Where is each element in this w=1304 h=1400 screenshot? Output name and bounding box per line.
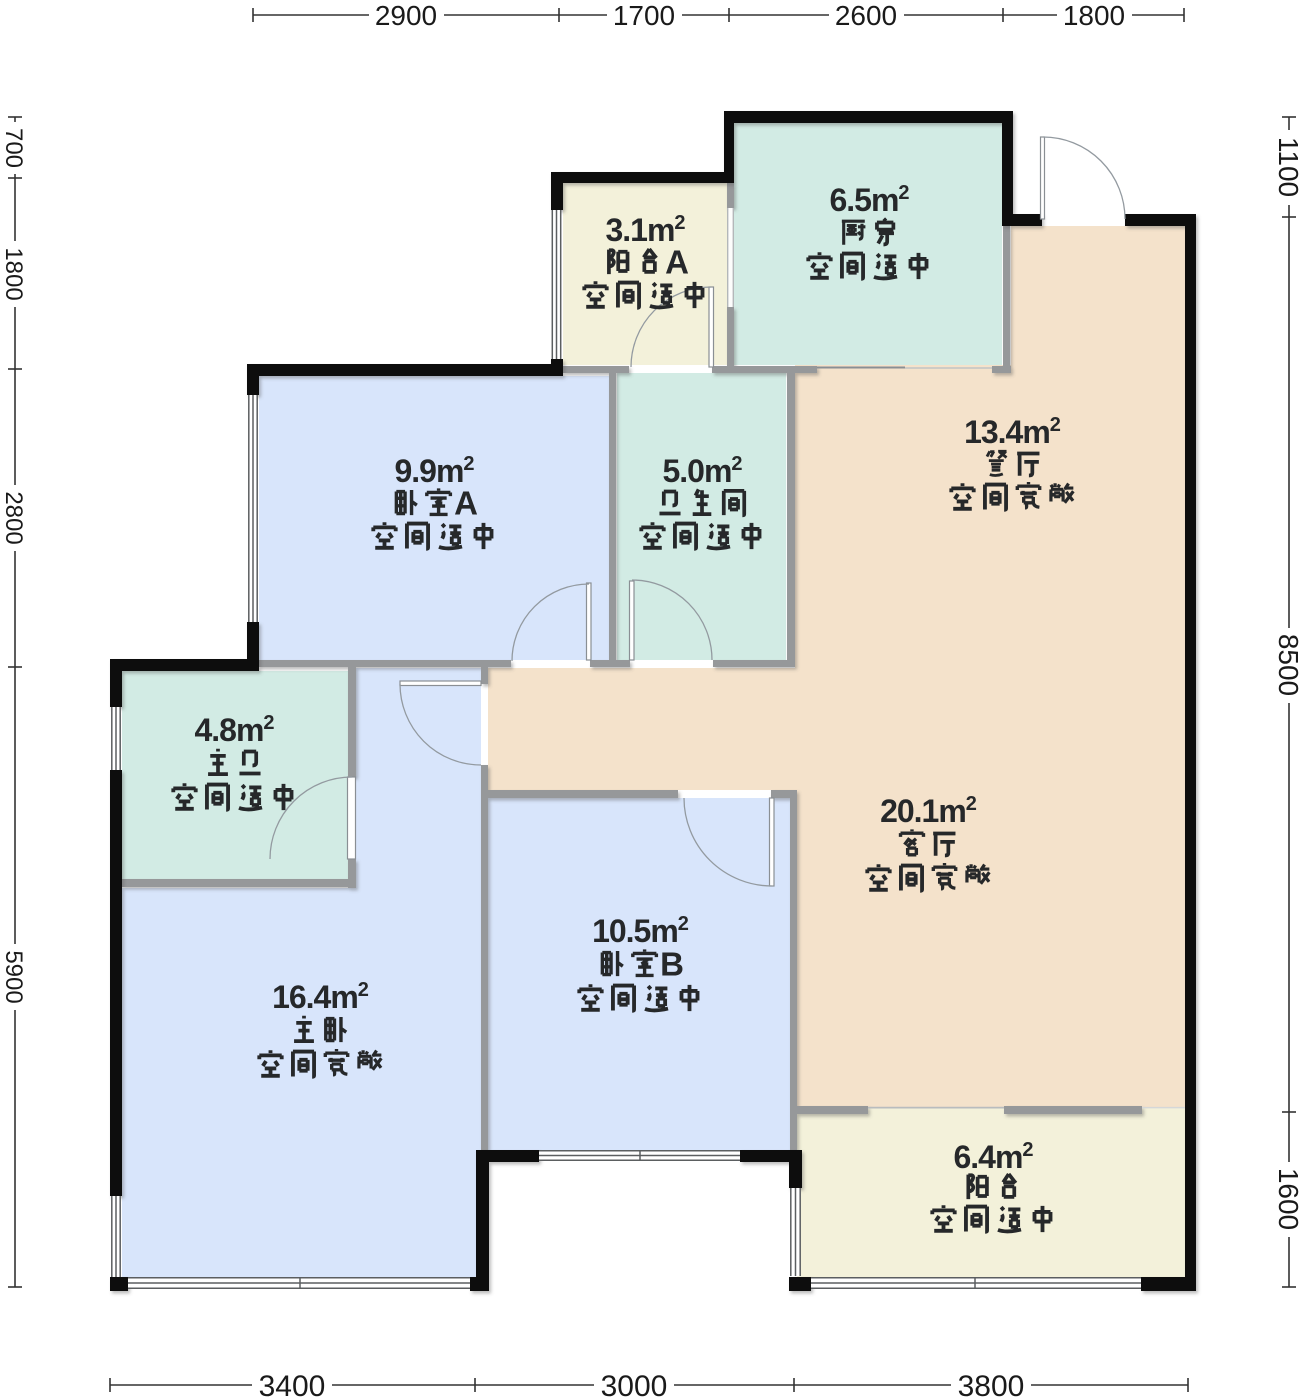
svg-text:4.8m2: 4.8m2 <box>194 712 274 748</box>
svg-text:1600: 1600 <box>1273 1168 1304 1230</box>
svg-text:16.4m2: 16.4m2 <box>272 979 369 1015</box>
svg-text:700: 700 <box>0 128 27 168</box>
svg-text:3800: 3800 <box>958 1370 1025 1400</box>
svg-text:8500: 8500 <box>1273 634 1304 696</box>
svg-text:1700: 1700 <box>613 0 675 31</box>
svg-text:1800: 1800 <box>0 247 27 300</box>
svg-text:5900: 5900 <box>0 950 27 1003</box>
svg-text:20.1m2: 20.1m2 <box>880 793 977 829</box>
svg-text:2800: 2800 <box>0 491 27 544</box>
svg-text:1800: 1800 <box>1063 0 1125 31</box>
svg-text:2600: 2600 <box>835 0 897 31</box>
svg-text:2900: 2900 <box>375 0 437 31</box>
svg-text:1100: 1100 <box>1273 137 1304 197</box>
svg-text:A: A <box>454 485 478 522</box>
svg-text:6.4m2: 6.4m2 <box>953 1139 1033 1175</box>
svg-text:3000: 3000 <box>601 1370 668 1400</box>
svg-text:6.5m2: 6.5m2 <box>829 182 909 218</box>
svg-text:B: B <box>660 946 684 983</box>
svg-text:A: A <box>665 244 689 281</box>
svg-text:5.0m2: 5.0m2 <box>662 453 742 489</box>
svg-text:10.5m2: 10.5m2 <box>592 913 689 949</box>
svg-text:13.4m2: 13.4m2 <box>964 414 1061 450</box>
svg-text:3400: 3400 <box>259 1370 326 1400</box>
